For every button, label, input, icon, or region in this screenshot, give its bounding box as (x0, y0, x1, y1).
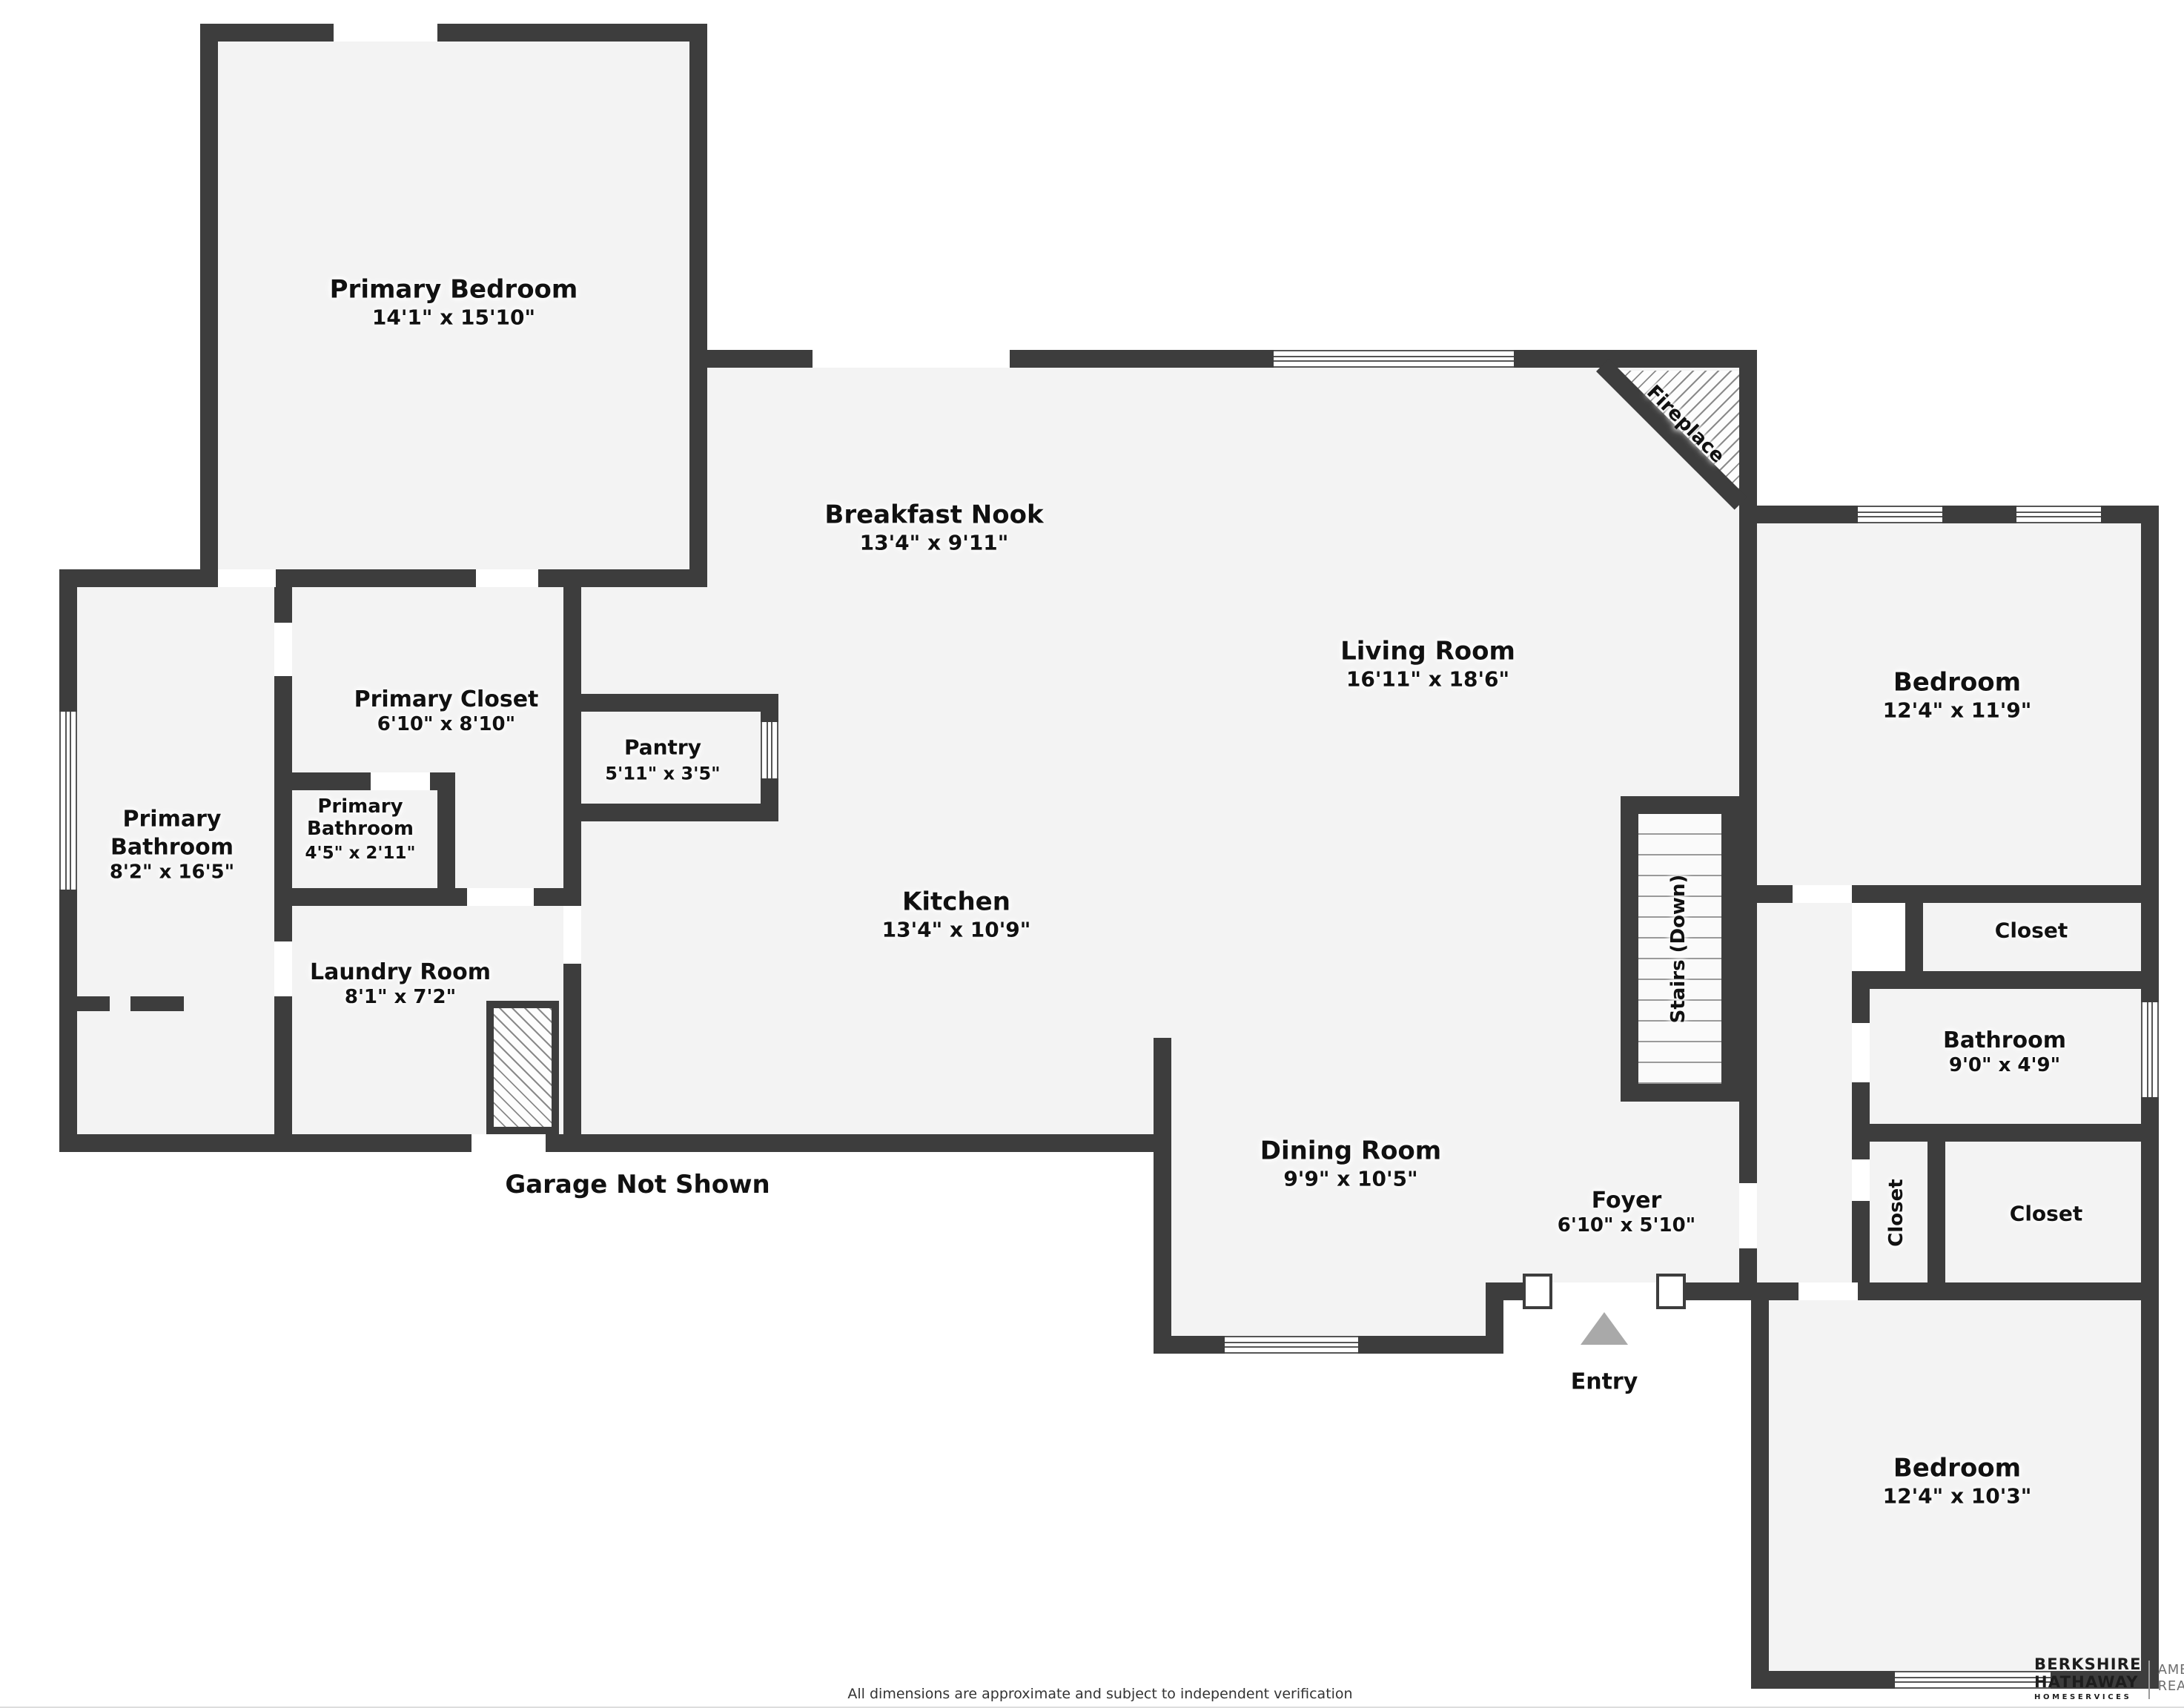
door-opening (1793, 885, 1852, 903)
wall (563, 694, 778, 712)
brand-right-line1: AMBASSADOR (2158, 1664, 2184, 1680)
bedroom-upper-label: Bedroom 12'4" x 11'9" (1883, 668, 2032, 726)
window (2016, 506, 2101, 523)
wall-stub (77, 996, 110, 1011)
window-opening (334, 24, 437, 42)
wall (1739, 350, 1757, 500)
primary-bedroom-label: Primary Bedroom 14'1" x 15'10" (330, 275, 578, 333)
stairs-label: Stairs (Down) (1668, 875, 1692, 1024)
laundry-room-label: Laundry Room 8'1" x 7'2" (310, 959, 491, 1010)
window (1858, 506, 1942, 523)
bathroom-label: Bathroom 9'0" x 4'9" (1943, 1027, 2066, 1079)
chimney-chase-hatch (486, 1001, 559, 1134)
door-frame (1656, 1274, 1686, 1309)
wall (689, 24, 707, 587)
entry-label: Entry (1571, 1368, 1638, 1396)
wall (1621, 796, 1638, 1102)
living-room-label: Living Room 16'11" x 18'6" (1340, 637, 1515, 695)
wall (1721, 796, 1739, 1102)
wall (2141, 506, 2159, 1689)
wall-opening (813, 350, 1010, 368)
brand-name-line1: BERKSHIRE (2034, 1656, 2142, 1674)
brand-logo: BERKSHIRE HATHAWAY HOMESERVICES AMBASSAD… (2034, 1656, 2184, 1702)
foyer-label: Foyer 6'10" x 5'10" (1558, 1187, 1695, 1239)
wall (437, 772, 455, 906)
door-opening (371, 772, 430, 790)
wall (1751, 1282, 1769, 1689)
wall (1852, 1124, 2159, 1142)
brand-name-line3: HOMESERVICES (2034, 1693, 2142, 1702)
wall-stub (130, 996, 184, 1011)
primary-bathroom-label: Primary Bathroom 8'2" x 16'5" (110, 805, 234, 885)
kitchen-label: Kitchen 13'4" x 10'9" (882, 887, 1031, 945)
brand-right-line2: REAL ESTATE (2158, 1679, 2184, 1695)
wall (59, 569, 218, 587)
window (1225, 1336, 1358, 1354)
door-opening (274, 941, 292, 996)
breakfast-nook-label: Breakfast Nook 13'4" x 9'11" (824, 500, 1043, 558)
closet-upper-label: Closet (1995, 920, 2068, 946)
window (2141, 1002, 2159, 1097)
wall (200, 24, 218, 587)
wall (274, 888, 581, 906)
wall (200, 24, 707, 42)
window (59, 712, 77, 890)
door-opening (1852, 1023, 1870, 1082)
door-opening (274, 623, 292, 676)
window (761, 722, 778, 778)
garage-note: Garage Not Shown (505, 1171, 770, 1202)
window (1274, 350, 1514, 368)
wall (1852, 971, 2159, 989)
door-opening (1799, 1282, 1858, 1300)
wall (200, 569, 707, 587)
door-opening (212, 569, 276, 587)
wall (563, 804, 778, 821)
disclaimer-text: All dimensions are approximate and subje… (847, 1687, 1352, 1703)
door-opening (1852, 1159, 1870, 1201)
pantry-label: Pantry 5'11" x 3'5" (605, 737, 720, 785)
dining-room-label: Dining Room 9'9" x 10'5" (1260, 1136, 1441, 1194)
door-opening (476, 569, 538, 587)
closet-lower-label: Closet (2010, 1203, 2082, 1229)
closet-hall-label: Closet (1886, 1179, 1910, 1246)
floor-plan: Primary Bedroom 14'1" x 15'10" Breakfast… (0, 0, 2184, 1708)
door-opening (467, 888, 534, 906)
wall (1609, 350, 1757, 368)
door-opening (471, 1134, 546, 1152)
wall (563, 1134, 1171, 1152)
entry-arrow (1581, 1312, 1628, 1345)
hallway-floor (1757, 903, 1852, 1282)
door-opening (563, 904, 581, 964)
wall (1927, 1142, 1945, 1282)
primary-closet-label: Primary Closet 6'10" x 8'10" (354, 686, 539, 738)
window (1895, 1671, 2051, 1689)
wall (563, 587, 581, 1152)
door-opening (1739, 1183, 1757, 1248)
brand-name-line2: HATHAWAY (2034, 1674, 2142, 1692)
primary-bathroom-small-label: Primary Bathroom 4'5" x 2'11" (305, 798, 416, 864)
bedroom-lower-label: Bedroom 12'4" x 10'3" (1883, 1454, 2032, 1512)
wall (1154, 1038, 1171, 1354)
door-frame (1523, 1274, 1552, 1309)
main-open-area-floor (707, 368, 1739, 1152)
logo-divider (2149, 1660, 2151, 1698)
dining-low-floor (1171, 1282, 1486, 1336)
kitchen-west-floor (565, 587, 707, 1134)
